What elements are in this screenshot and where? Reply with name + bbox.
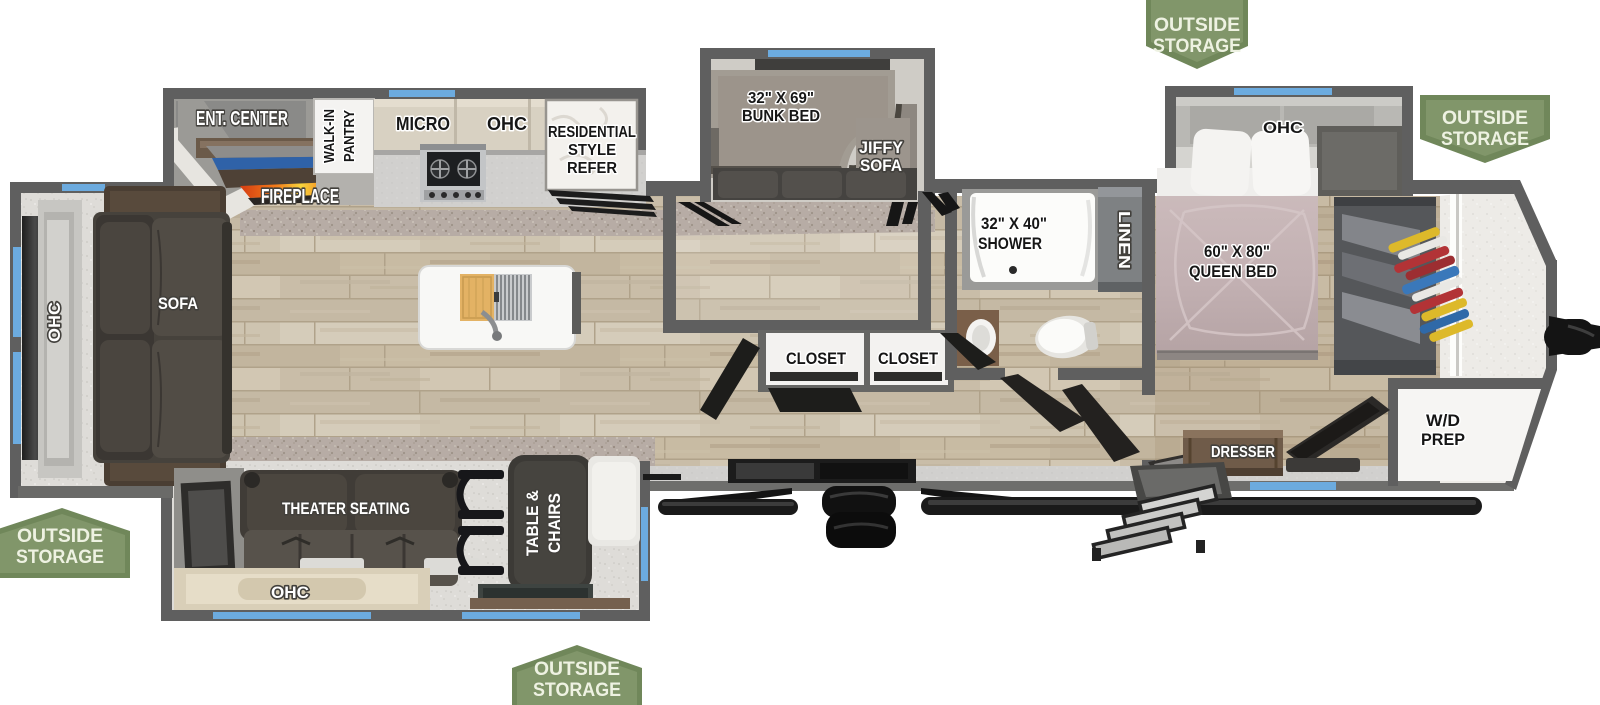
svg-text:32" X 40": 32" X 40" bbox=[981, 214, 1047, 233]
svg-text:WALK-IN: WALK-IN bbox=[321, 109, 338, 163]
svg-text:32" X 69": 32" X 69" bbox=[748, 90, 814, 107]
svg-text:OUTSIDE: OUTSIDE bbox=[17, 526, 103, 547]
svg-text:OHC: OHC bbox=[1263, 120, 1303, 137]
svg-text:STORAGE: STORAGE bbox=[1153, 36, 1241, 57]
svg-text:STORAGE: STORAGE bbox=[533, 680, 621, 701]
svg-text:CLOSET: CLOSET bbox=[786, 349, 847, 368]
svg-text:W/D: W/D bbox=[1426, 411, 1460, 430]
svg-text:RESIDENTIAL: RESIDENTIAL bbox=[548, 124, 636, 141]
svg-text:DRESSER: DRESSER bbox=[1211, 444, 1275, 461]
svg-text:STYLE: STYLE bbox=[568, 142, 616, 159]
svg-text:60" X 80": 60" X 80" bbox=[1204, 242, 1270, 261]
svg-text:OUTSIDE: OUTSIDE bbox=[1154, 15, 1240, 36]
svg-text:SOFA: SOFA bbox=[158, 294, 198, 313]
svg-text:TABLE &: TABLE & bbox=[523, 490, 542, 556]
svg-text:STORAGE: STORAGE bbox=[1441, 129, 1529, 150]
svg-text:LINEN: LINEN bbox=[1115, 211, 1132, 269]
svg-text:CHAIRS: CHAIRS bbox=[545, 493, 564, 553]
svg-text:MICRO: MICRO bbox=[396, 114, 450, 134]
svg-text:OUTSIDE: OUTSIDE bbox=[1442, 108, 1528, 129]
svg-text:CLOSET: CLOSET bbox=[878, 349, 939, 368]
svg-text:JIFFY: JIFFY bbox=[859, 138, 904, 157]
svg-text:OUTSIDE: OUTSIDE bbox=[534, 659, 620, 680]
svg-text:PANTRY: PANTRY bbox=[341, 110, 358, 162]
svg-text:ENT. CENTER: ENT. CENTER bbox=[196, 108, 288, 130]
svg-text:THEATER SEATING: THEATER SEATING bbox=[282, 499, 410, 518]
svg-text:FIREPLACE: FIREPLACE bbox=[261, 186, 339, 208]
svg-text:REFER: REFER bbox=[567, 160, 617, 177]
svg-text:OHC: OHC bbox=[487, 114, 527, 134]
svg-text:SOFA: SOFA bbox=[860, 156, 902, 175]
svg-text:QUEEN BED: QUEEN BED bbox=[1189, 262, 1277, 281]
svg-text:BUNK BED: BUNK BED bbox=[742, 108, 820, 125]
svg-text:OHC: OHC bbox=[45, 302, 64, 342]
svg-text:STORAGE: STORAGE bbox=[16, 547, 104, 568]
svg-text:SHOWER: SHOWER bbox=[978, 234, 1042, 253]
svg-text:OHC: OHC bbox=[271, 583, 309, 602]
svg-text:PREP: PREP bbox=[1421, 430, 1465, 449]
